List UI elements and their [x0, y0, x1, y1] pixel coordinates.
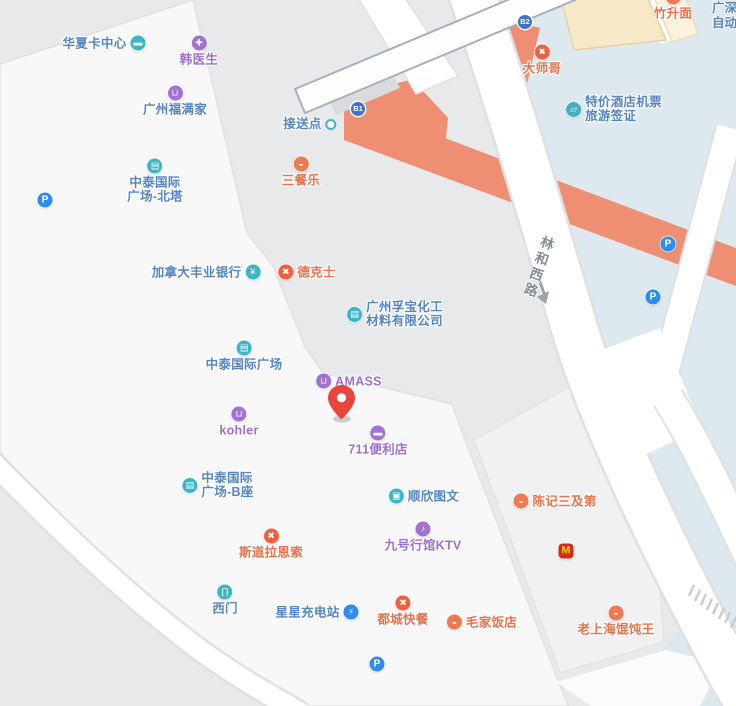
poi-discount-hotel-tickets[interactable]: ▱特价酒店机票 旅游签证	[566, 95, 662, 123]
poi-huaxia-card-center[interactable]: 华夏卡中心▬	[62, 36, 145, 51]
poi-kohler[interactable]: ⊔kohler	[219, 407, 258, 438]
poi-zhongtai-plaza-north-tower[interactable]: ▤中泰国际 广场-北塔	[127, 159, 183, 204]
bowl-icon: ◒	[447, 615, 462, 630]
building-icon: ▤	[147, 159, 162, 174]
poi-label: 华夏卡中心	[62, 36, 126, 50]
parking-icon: P	[370, 657, 385, 672]
poi-chenji-sanjidi[interactable]: ◒陈记三及第	[513, 494, 596, 509]
bowl-icon: ◒	[609, 606, 624, 621]
cutlery-icon: ✖	[395, 596, 410, 611]
poi-dicos[interactable]: ✖德克士	[278, 265, 335, 280]
poi-label: 加拿大丰业银行	[152, 265, 242, 279]
poi-label: 接送点	[283, 117, 321, 131]
poi-xingxing-charging[interactable]: 星星充电站⚡	[275, 605, 358, 620]
microphone-icon: ♪	[415, 522, 430, 537]
poi-sancanle[interactable]: ◒三餐乐	[282, 157, 320, 188]
building-icon: ▤	[347, 307, 362, 322]
poi-dashige[interactable]: ✖大师哥	[523, 45, 561, 76]
poi-han-doctor[interactable]: ✚韩医生	[180, 36, 218, 67]
poi-scotiabank-canada[interactable]: 加拿大丰业银行¥	[152, 265, 261, 280]
map-canvas[interactable]: 林和西路 广深 自动 华夏卡中心▬✚韩医生⊔广州福满家▤中泰国际 广场-北塔接送…	[0, 0, 736, 706]
poi-west-gate[interactable]: ∏西门	[212, 585, 238, 616]
cutlery-icon: ✖	[535, 45, 550, 60]
poi-label: 广州福满家	[143, 103, 207, 117]
poi-fubao-chemical[interactable]: ▤广州孚宝化工 材料有限公司	[347, 300, 443, 328]
mcdonalds-icon: M	[559, 544, 574, 559]
poi-parking-1[interactable]: P	[38, 193, 53, 208]
poi-laoshanghai-wonton[interactable]: ◒老上海馄饨王	[578, 606, 655, 637]
poi-label: 德克士	[297, 265, 335, 279]
corner-poi-label: 广深 自动	[712, 1, 736, 31]
bowl-icon: ◒	[666, 0, 681, 5]
parking-icon: P	[661, 237, 676, 252]
poi-label: 中泰国际 广场-北塔	[127, 176, 183, 204]
poi-label: 711便利店	[348, 443, 407, 457]
poi-label: kohler	[219, 424, 258, 438]
parking-icon: P	[38, 193, 53, 208]
bank-yuan-icon: ¥	[245, 265, 260, 280]
poi-label: 毛家饭店	[466, 615, 517, 629]
poi-label: 中泰国际 广场-B座	[201, 471, 253, 499]
poi-exit-b1[interactable]: B1	[351, 102, 365, 116]
shopping-bag-icon: ⊔	[232, 407, 247, 422]
poi-ducheng-fastfood[interactable]: ✖都城快餐	[377, 596, 428, 627]
poi-label: 三餐乐	[282, 174, 320, 188]
poi-label: 陈记三及第	[532, 494, 596, 508]
cutlery-icon: ✖	[263, 529, 278, 544]
building-icon: ▤	[237, 341, 252, 356]
medical-icon: ✚	[192, 36, 207, 51]
poi-stora-enso[interactable]: ✖斯道拉恩索	[239, 529, 303, 560]
poi-label: 竹升面	[654, 7, 692, 21]
location-pin[interactable]	[328, 385, 355, 425]
poi-mcdonalds[interactable]: M	[559, 544, 574, 559]
poi-label: 大师哥	[523, 62, 561, 76]
poi-maojia-restaurant[interactable]: ◒毛家饭店	[447, 615, 517, 630]
poi-label: 斯道拉恩索	[239, 546, 303, 560]
poi-zhongtai-plaza-b[interactable]: ▤中泰国际 广场-B座	[182, 471, 253, 499]
card-icon: ▬	[131, 36, 146, 51]
poi-label: 韩医生	[180, 53, 218, 67]
poi-shunxin-graphics[interactable]: ▣顺欣图文	[389, 489, 459, 504]
subway-exit-b1-badge: B1	[351, 102, 365, 116]
poi-parking-2[interactable]: P	[661, 237, 676, 252]
poi-label: 九号行馆KTV	[384, 539, 461, 553]
poi-label: 特价酒店机票 旅游签证	[585, 95, 662, 123]
poi-label: 中泰国际广场	[206, 358, 283, 372]
poi-jiuhao-ktv[interactable]: ♪九号行馆KTV	[384, 522, 461, 553]
poi-parking-4[interactable]: P	[370, 657, 385, 672]
poi-guangzhou-fumanjia[interactable]: ⊔广州福满家	[143, 86, 207, 117]
poi-label: 广州孚宝化工 材料有限公司	[366, 300, 443, 328]
bowl-icon: ◒	[294, 157, 309, 172]
storefront-icon: ▬	[371, 426, 386, 441]
bowl-icon: ◒	[513, 494, 528, 509]
poi-shuttle-point[interactable]: 接送点	[283, 117, 336, 131]
poi-label: 老上海馄饨王	[578, 623, 655, 637]
shuttle-dot-icon	[326, 119, 337, 130]
shopping-bag-icon: ⊔	[167, 86, 182, 101]
printer-icon: ▣	[389, 489, 404, 504]
poi-label: 都城快餐	[377, 613, 428, 627]
poi-parking-3[interactable]: P	[646, 290, 661, 305]
poi-label: 星星充电站	[275, 605, 339, 619]
poi-label: 西门	[212, 602, 238, 616]
poi-zhushengmian[interactable]: ◒竹升面	[654, 0, 692, 21]
ticket-icon: ▱	[566, 102, 581, 117]
charging-icon: ⚡	[344, 605, 359, 620]
poi-711-store[interactable]: ▬711便利店	[348, 426, 407, 457]
cutlery-icon: ✖	[278, 265, 293, 280]
poi-label: 顺欣图文	[408, 489, 459, 503]
subway-exit-b2-badge: B2	[518, 15, 532, 29]
poi-zhongtai-plaza[interactable]: ▤中泰国际广场	[206, 341, 283, 372]
parking-icon: P	[646, 290, 661, 305]
poi-exit-b2[interactable]: B2	[518, 15, 532, 29]
building-icon: ▤	[182, 478, 197, 493]
gate-icon: ∏	[217, 585, 232, 600]
